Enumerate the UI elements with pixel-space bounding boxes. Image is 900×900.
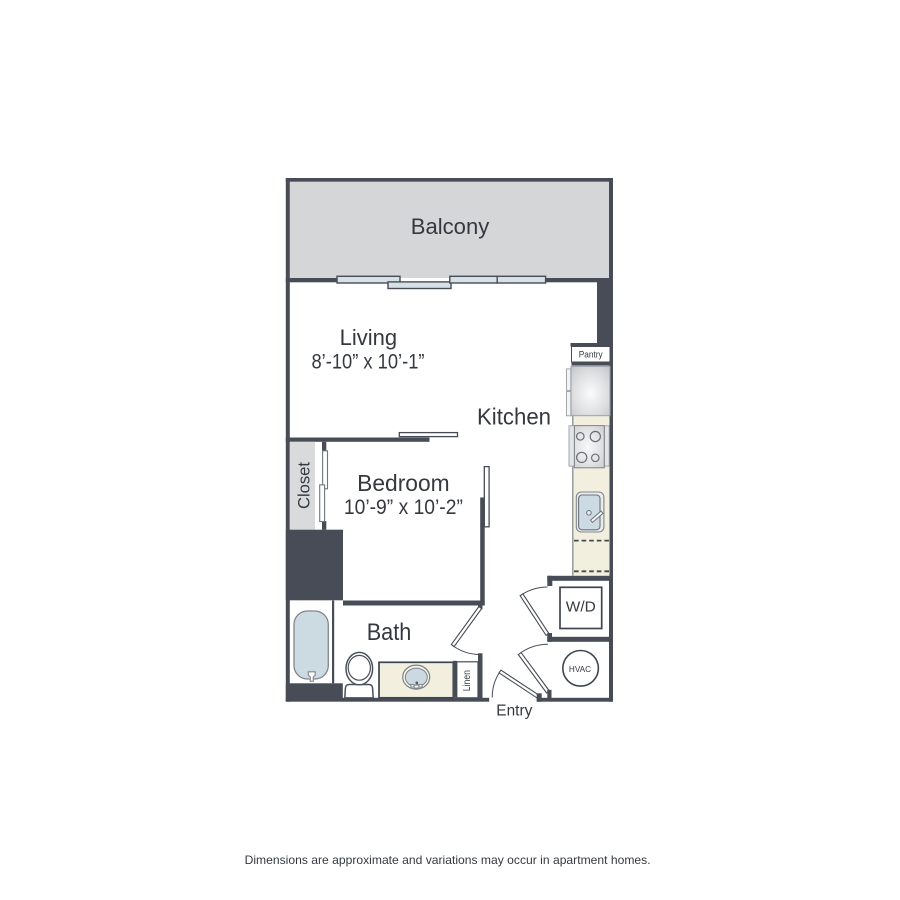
- svg-text:Entry: Entry: [496, 703, 532, 720]
- svg-text:Linen: Linen: [462, 670, 473, 691]
- svg-text:Bath: Bath: [367, 619, 412, 646]
- svg-text:10’-9” x 10’-2”: 10’-9” x 10’-2”: [344, 495, 463, 519]
- svg-text:Pantry: Pantry: [579, 350, 604, 360]
- svg-text:Closet: Closet: [295, 462, 313, 509]
- svg-text:Balcony: Balcony: [411, 214, 490, 239]
- svg-text:W/D: W/D: [566, 599, 596, 616]
- svg-text:HVAC: HVAC: [569, 664, 591, 674]
- svg-text:Bedroom: Bedroom: [357, 470, 450, 496]
- svg-text:8’-10” x 10’-1”: 8’-10” x 10’-1”: [312, 350, 425, 374]
- svg-text:Living: Living: [340, 325, 398, 350]
- svg-text:Dimensions are approximate and: Dimensions are approximate and variation…: [245, 853, 651, 867]
- svg-text:Kitchen: Kitchen: [477, 404, 551, 430]
